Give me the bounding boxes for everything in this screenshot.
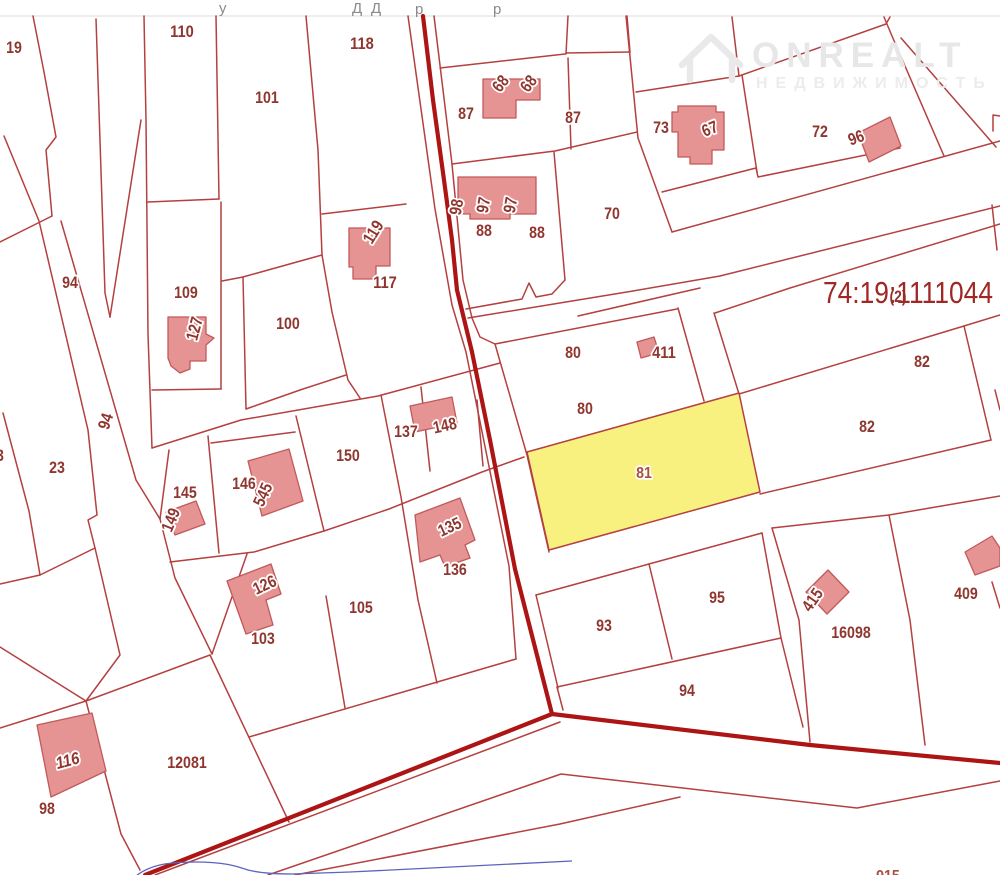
- svg-text:88: 88: [529, 223, 545, 242]
- svg-text:23: 23: [49, 458, 65, 477]
- svg-text:98: 98: [39, 799, 55, 818]
- svg-text:117: 117: [373, 273, 397, 292]
- svg-text:82: 82: [914, 352, 930, 371]
- svg-text:87: 87: [565, 108, 581, 127]
- svg-text:118: 118: [350, 34, 374, 53]
- svg-text:146: 146: [232, 474, 256, 493]
- svg-text:409: 409: [954, 584, 978, 603]
- svg-text:97: 97: [473, 196, 494, 215]
- svg-text:109: 109: [174, 283, 198, 302]
- svg-text:80: 80: [577, 399, 593, 418]
- svg-text:70: 70: [604, 204, 620, 223]
- svg-text:100: 100: [276, 314, 300, 333]
- svg-text:р: р: [493, 1, 501, 18]
- svg-text:12081: 12081: [167, 753, 207, 772]
- svg-text:101: 101: [255, 88, 279, 107]
- svg-text:915: 915: [876, 868, 900, 875]
- svg-text:Д: Д: [352, 0, 362, 17]
- svg-text:82: 82: [859, 417, 875, 436]
- svg-text:72: 72: [812, 122, 828, 141]
- svg-text:110: 110: [170, 22, 194, 41]
- svg-text:94: 94: [62, 273, 78, 292]
- svg-text:97: 97: [500, 196, 521, 215]
- svg-text:16098: 16098: [831, 623, 871, 642]
- svg-text:411: 411: [652, 343, 676, 362]
- svg-text:150: 150: [336, 446, 360, 465]
- svg-text:95: 95: [709, 588, 725, 607]
- svg-text:136: 136: [443, 560, 467, 579]
- svg-text:у: у: [219, 0, 227, 17]
- svg-text:81: 81: [636, 465, 652, 482]
- svg-text:94: 94: [679, 681, 695, 700]
- svg-text:74:19:1111044: 74:19:1111044: [823, 275, 993, 310]
- svg-text:103: 103: [251, 629, 275, 648]
- svg-text:98: 98: [446, 198, 467, 217]
- svg-text:145: 145: [173, 483, 197, 502]
- svg-text:ONREALT: ONREALT: [752, 36, 968, 75]
- svg-text:80: 80: [565, 343, 581, 362]
- svg-text:93: 93: [596, 616, 612, 635]
- svg-text:73: 73: [653, 118, 669, 137]
- svg-text:105: 105: [349, 598, 373, 617]
- svg-text:Д: Д: [371, 0, 381, 17]
- svg-text:88: 88: [476, 221, 492, 240]
- svg-text:87: 87: [458, 104, 474, 123]
- svg-text:НЕДВИЖИМОСТЬ: НЕДВИЖИМОСТЬ: [756, 75, 993, 92]
- svg-text:3: 3: [0, 446, 4, 465]
- svg-text:19: 19: [6, 38, 22, 57]
- svg-text:137: 137: [394, 422, 418, 441]
